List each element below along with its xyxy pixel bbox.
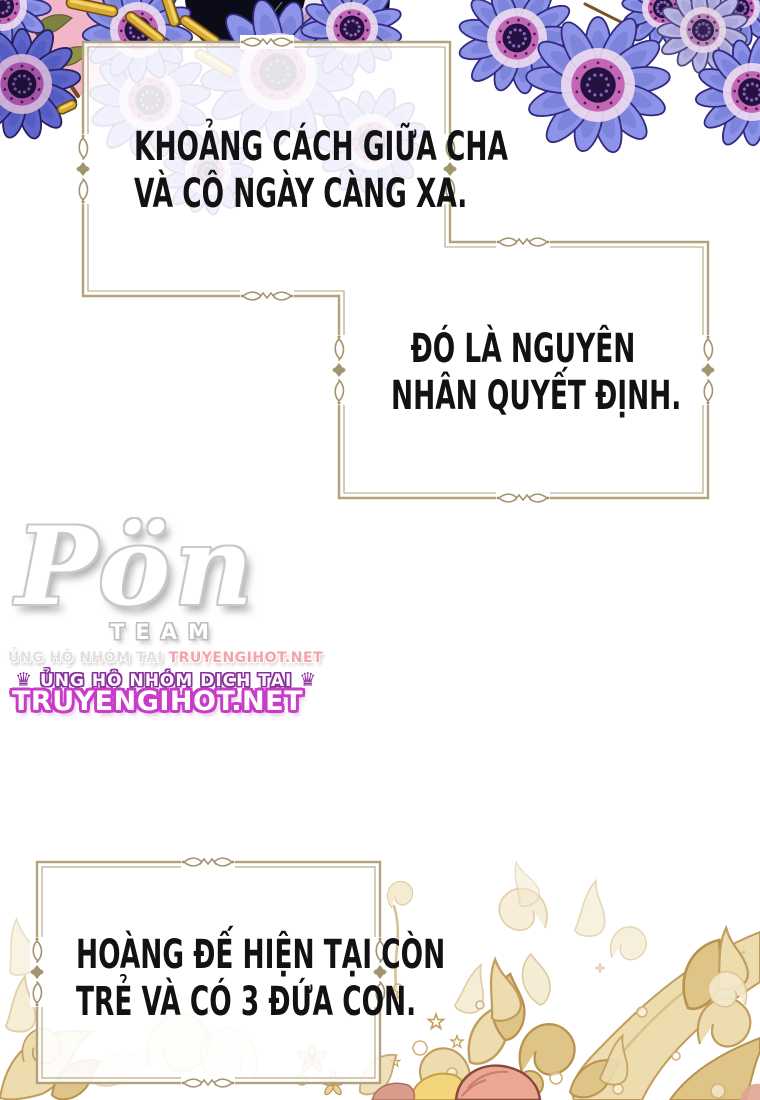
caption-panel-2: ĐÓ LÀ NGUYÊN NHÂN QUYẾT ĐỊNH.	[391, 326, 655, 420]
caption-line: TRẺ VÀ CÓ 3 ĐỨA CON.	[76, 979, 340, 1026]
caption-panel-3: HOÀNG ĐẾ HIỆN TẠI CÒN TRẺ VÀ CÓ 3 ĐỨA CO…	[76, 932, 340, 1026]
caption-line: NHÂN QUYẾT ĐỊNH.	[391, 373, 655, 420]
comic-page: KHOẢNG CÁCH GIỮA CHA VÀ CÔ NGÀY CÀNG XA.…	[0, 0, 760, 1100]
caption-line: VÀ CÔ NGÀY CÀNG XA.	[134, 171, 398, 218]
caption-panel-1: KHOẢNG CÁCH GIỮA CHA VÀ CÔ NGÀY CÀNG XA.	[134, 124, 398, 218]
caption-line: HOÀNG ĐẾ HIỆN TẠI CÒN	[76, 932, 340, 979]
caption-line: KHOẢNG CÁCH GIỮA CHA	[134, 124, 398, 171]
star-icon	[428, 1014, 443, 1029]
caption-line: ĐÓ LÀ NGUYÊN	[391, 326, 655, 373]
